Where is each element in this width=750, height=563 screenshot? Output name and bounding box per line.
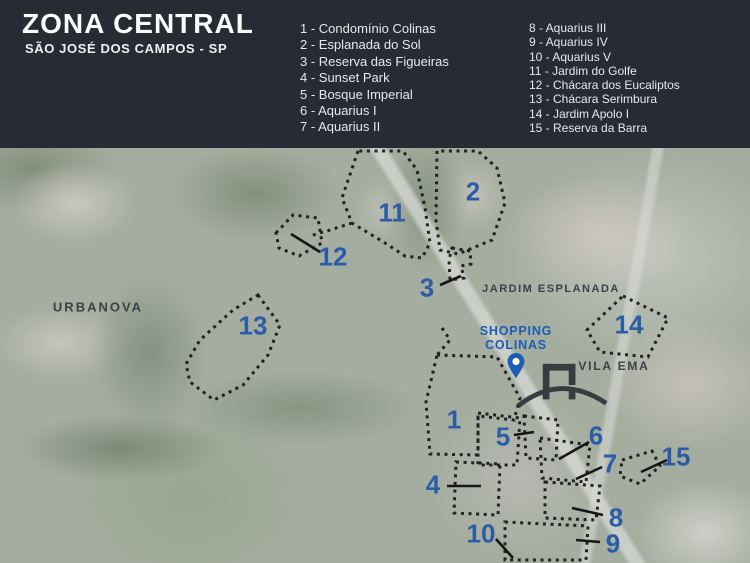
satellite-map: URBANOVA JARDIM ESPLANADA VILA EMA SHOPP… [0,148,750,563]
poi-shopping-line1: SHOPPING [460,324,572,338]
map-marker-3: 3 [420,273,434,304]
pointer-line-5 [514,432,534,435]
page-subtitle: SÃO JOSÉ DOS CAMPOS - SP [25,41,227,56]
map-marker-11: 11 [378,198,406,229]
map-marker-2: 2 [466,177,480,208]
legend-column-1: 1 - Condomínio Colinas 2 - Esplanada do … [300,21,449,136]
legend-item-13: 13 - Chácara Serimbura [529,92,680,106]
header-panel: ZONA CENTRAL SÃO JOSÉ DOS CAMPOS - SP 1 … [0,0,750,148]
legend-item-10: 10 - Aquarius V [529,50,680,64]
region-outline-8 [545,482,600,520]
region-outline-11-ext [310,223,352,236]
map-marker-1: 1 [447,405,461,436]
map-marker-4: 4 [426,470,440,501]
legend-item-6: 6 - Aquarius I [300,103,449,119]
region-outline-4 [454,462,500,515]
infographic: ZONA CENTRAL SÃO JOSÉ DOS CAMPOS - SP 1 … [0,0,750,563]
legend-item-7: 7 - Aquarius II [300,119,449,135]
region-outline-1-ext [437,328,450,355]
legend-item-15: 15 - Reserva da Barra [529,121,680,135]
pointer-line-6 [559,442,589,459]
map-marker-10: 10 [467,519,496,550]
legend-item-14: 14 - Jardim Apolo I [529,107,680,121]
legend-item-8: 8 - Aquarius III [529,21,680,35]
legend-item-12: 12 - Chácara dos Eucaliptos [529,78,680,92]
legend-item-5: 5 - Bosque Imperial [300,87,449,103]
map-marker-6: 6 [589,421,603,452]
legend-item-3: 3 - Reserva das Figueiras [300,54,449,70]
map-overlay [0,148,750,563]
pointer-line-9 [576,540,600,542]
map-marker-5: 5 [496,422,510,453]
legend-item-9: 9 - Aquarius IV [529,35,680,49]
map-marker-14: 14 [615,310,644,341]
page-title: ZONA CENTRAL [22,8,254,40]
area-label-jardim-esplanada: JARDIM ESPLANADA [482,283,620,295]
map-marker-9: 9 [606,529,620,560]
poi-shopping-line2: COLINAS [460,338,572,352]
legend-item-1: 1 - Condomínio Colinas [300,21,449,37]
area-label-urbanova: URBANOVA [53,300,143,315]
map-marker-15: 15 [662,442,691,473]
legend-item-11: 11 - Jardim do Golfe [529,64,680,78]
region-outline-9-10 [505,522,588,560]
legend-item-2: 2 - Esplanada do Sol [300,37,449,53]
map-marker-13: 13 [239,311,268,342]
map-marker-7: 7 [603,449,617,480]
legend-column-2: 8 - Aquarius III 9 - Aquarius IV 10 - Aq… [529,21,680,135]
region-outline-15 [620,451,660,484]
legend-item-4: 4 - Sunset Park [300,70,449,86]
poi-shopping-colinas: SHOPPING COLINAS [460,324,572,352]
map-marker-12: 12 [319,242,348,273]
pointer-line-10 [496,539,513,558]
arch-monument-logo-icon [514,360,610,410]
pointer-line-12 [291,234,320,252]
pointer-line-7 [576,467,602,479]
